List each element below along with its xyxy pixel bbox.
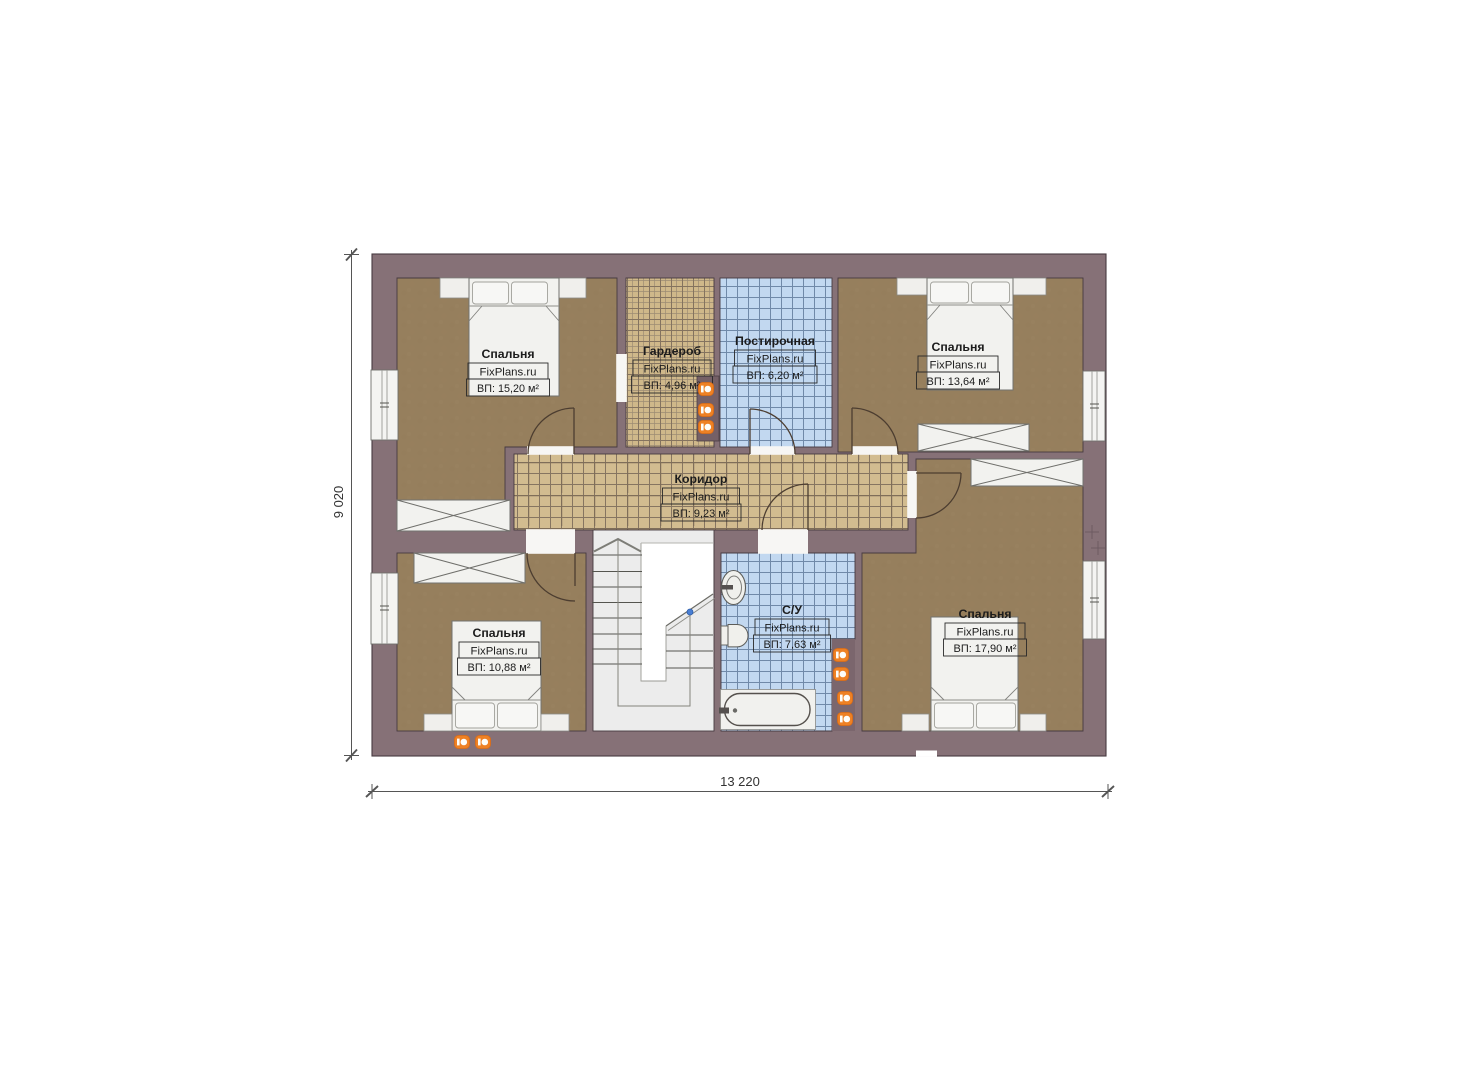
svg-text:FixPlans.ru: FixPlans.ru [471,646,528,658]
svg-text:ВП: 17,90 м²: ВП: 17,90 м² [954,643,1017,655]
svg-text:ВП: 4,96 м²: ВП: 4,96 м² [644,380,701,392]
svg-text:FixPlans.ru: FixPlans.ru [673,492,730,504]
svg-text:ВП: 7,63 м²: ВП: 7,63 м² [764,639,821,651]
svg-text:Спальня: Спальня [472,626,525,640]
svg-text:Спальня: Спальня [481,347,534,361]
svg-text:FixPlans.ru: FixPlans.ru [747,354,804,366]
svg-text:13 220: 13 220 [720,774,760,789]
svg-text:Спальня: Спальня [931,340,984,354]
svg-text:ВП: 9,23 м²: ВП: 9,23 м² [673,508,730,520]
svg-text:ВП: 6,20 м²: ВП: 6,20 м² [747,370,804,382]
svg-text:Постирочная: Постирочная [735,334,815,348]
svg-text:9 020: 9 020 [331,486,346,519]
svg-text:Гардероб: Гардероб [643,344,702,358]
svg-text:Коридор: Коридор [675,472,728,486]
svg-text:FixPlans.ru: FixPlans.ru [480,367,537,379]
svg-text:FixPlans.ru: FixPlans.ru [765,623,820,635]
svg-text:С/У: С/У [782,603,802,617]
svg-text:ВП: 10,88 м²: ВП: 10,88 м² [468,662,531,674]
svg-text:ВП: 15,20 м²: ВП: 15,20 м² [477,383,539,395]
svg-text:FixPlans.ru: FixPlans.ru [957,627,1014,639]
svg-text:Спальня: Спальня [958,607,1011,621]
svg-text:ВП: 13,64 м²: ВП: 13,64 м² [927,376,990,388]
svg-text:FixPlans.ru: FixPlans.ru [930,360,987,372]
svg-text:FixPlans.ru: FixPlans.ru [644,364,701,376]
